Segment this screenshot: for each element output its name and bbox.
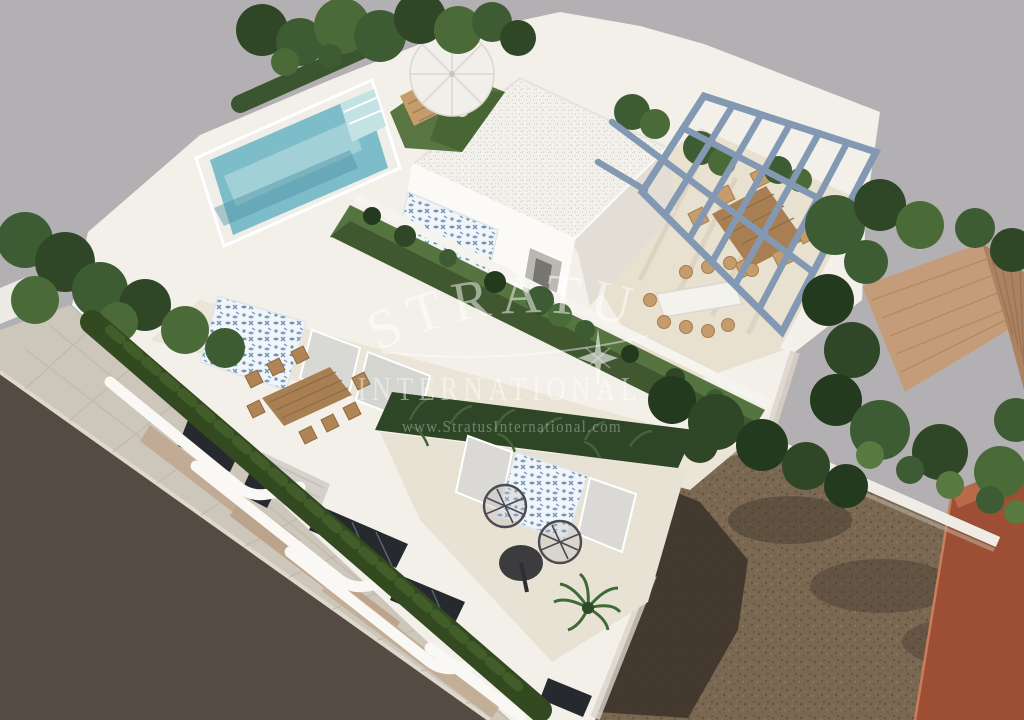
umbrella-pole-top (449, 71, 455, 77)
architectural-render: STRATUS INTERNATIONAL www.StratusInterna… (0, 0, 1024, 720)
watermark-brand-bottom: INTERNATIONAL (358, 371, 643, 408)
wire-egg-chair (539, 521, 581, 563)
watermark-website: www.StratusInternational.com (402, 417, 622, 436)
wire-egg-chair (484, 485, 526, 527)
tree-shadow (810, 559, 954, 613)
render-canvas: STRATUS INTERNATIONAL www.StratusInterna… (0, 0, 1024, 720)
